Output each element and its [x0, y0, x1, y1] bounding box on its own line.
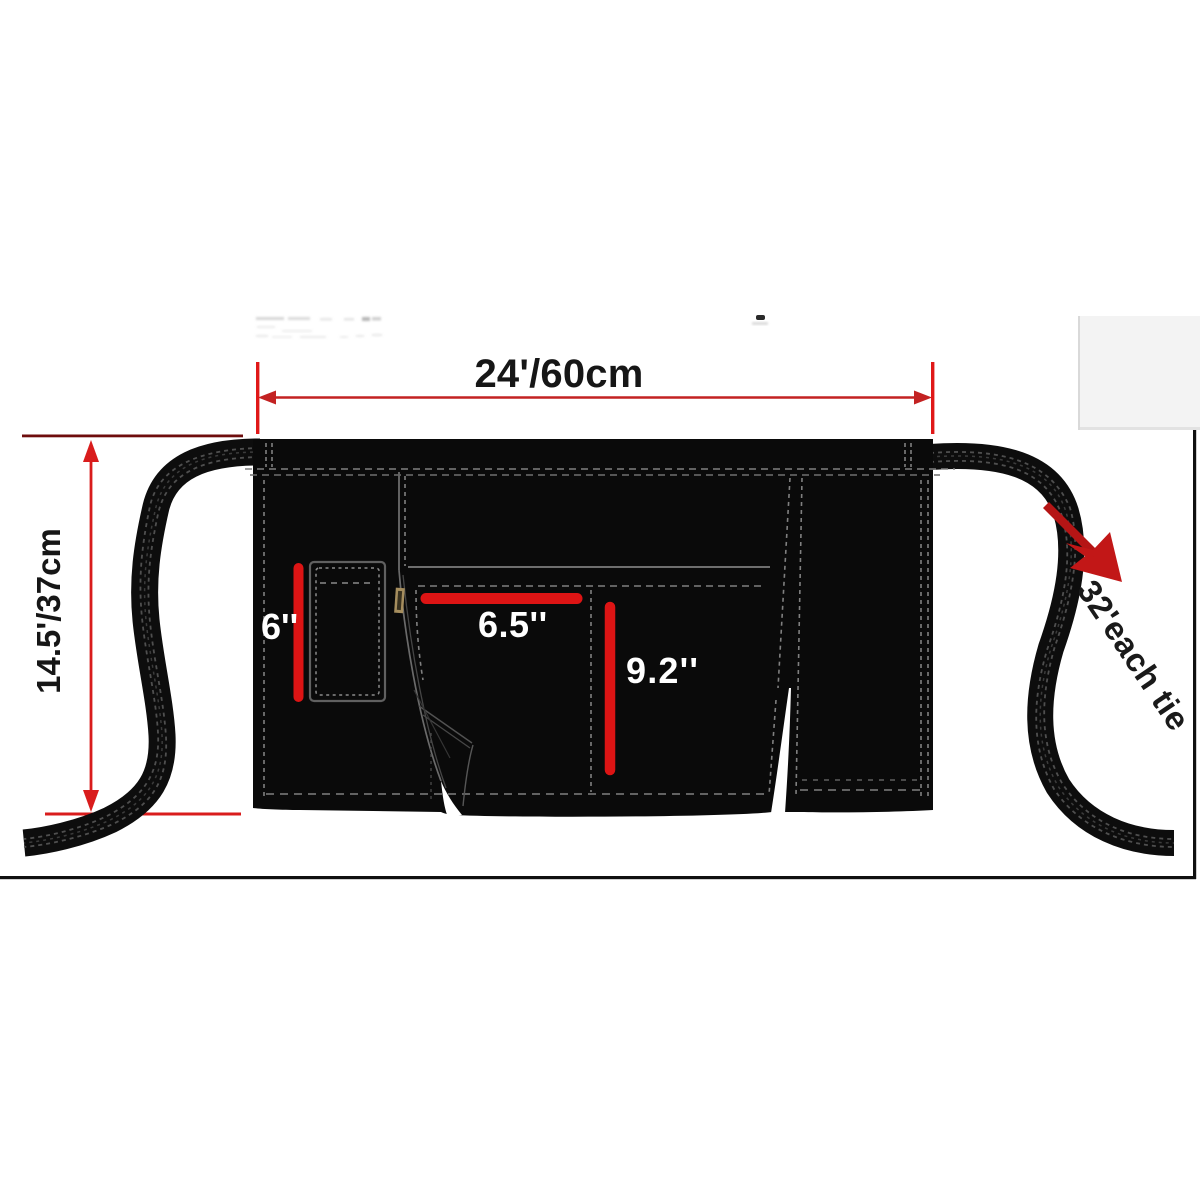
svg-text:9.2'': 9.2'' [626, 650, 699, 691]
svg-text:24'/60cm: 24'/60cm [474, 352, 643, 396]
svg-text:6.5'': 6.5'' [478, 604, 548, 645]
svg-text:6'': 6'' [261, 606, 298, 647]
svg-text:14.5'/37cm: 14.5'/37cm [30, 528, 67, 694]
